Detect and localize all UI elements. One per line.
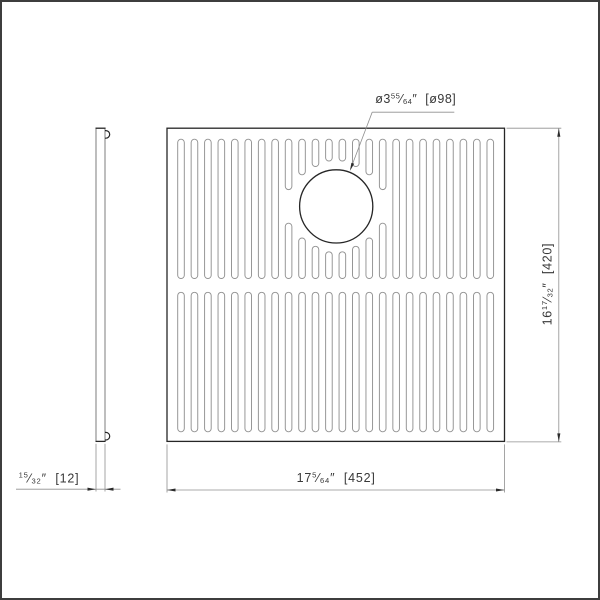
svg-text:175⁄64″ [452]: 175⁄64″ [452] — [297, 470, 376, 485]
svg-text:1617⁄32″ [420]: 1617⁄32″ [420] — [540, 243, 555, 326]
svg-text:15⁄32″ [12]: 15⁄32″ [12] — [19, 471, 80, 486]
svg-text:ø355⁄64″ [ø98]: ø355⁄64″ [ø98] — [375, 92, 456, 107]
